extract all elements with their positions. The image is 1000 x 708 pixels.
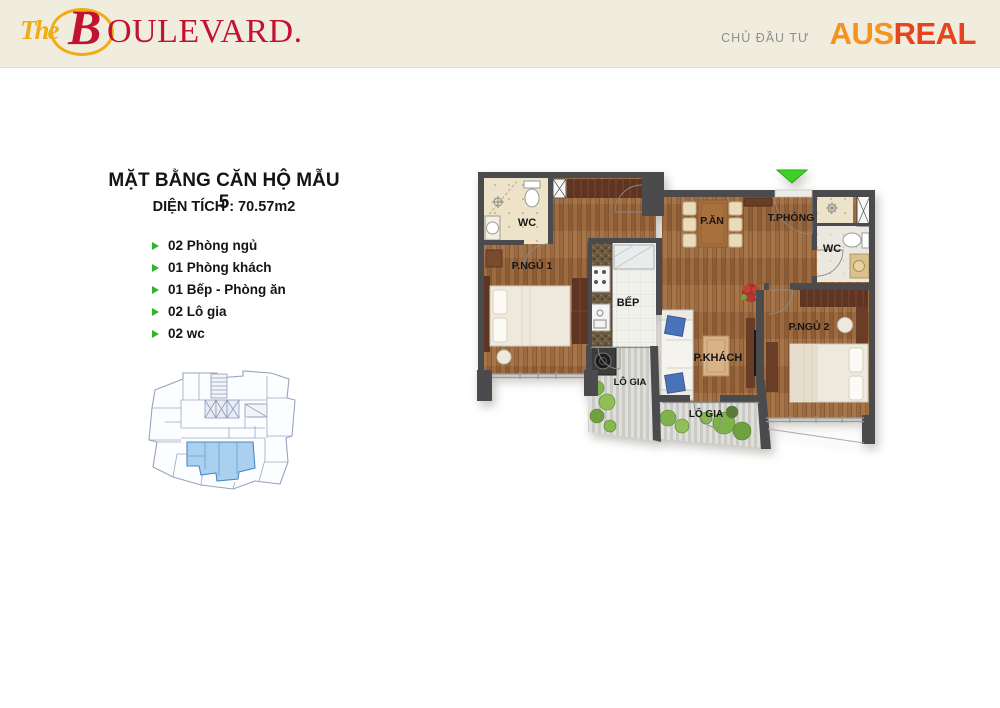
room-label-wc1: WC bbox=[518, 217, 536, 229]
bedroom2-tv-cabinet bbox=[766, 342, 778, 392]
boulevard-logo: The B OULEVARD. bbox=[12, 2, 342, 66]
feature-label: 01 Phòng khách bbox=[168, 260, 272, 275]
tv-screen bbox=[754, 330, 756, 376]
feature-label: 02 Lô gia bbox=[168, 304, 227, 319]
entry-threshold bbox=[775, 190, 812, 197]
bedroom1-nightstand bbox=[486, 250, 502, 267]
apartment-floorplan: WC P.NGỦ 1 BẾP P.ĂN T.PHÒNG WC P.KHÁCH P… bbox=[460, 150, 890, 470]
ausreal-logo: AUSREAL bbox=[830, 16, 976, 52]
bedroom1-headboard bbox=[484, 276, 490, 352]
bullet-triangle-icon bbox=[152, 264, 159, 272]
feature-label: 01 Bếp - Phòng ăn bbox=[168, 282, 286, 297]
entry-arrow-icon bbox=[777, 170, 807, 183]
entry-cabinet bbox=[744, 198, 772, 206]
feature-item: 02 Lô gia bbox=[152, 304, 286, 326]
ausreal-logo-real: REAL bbox=[894, 16, 976, 51]
room-label-bedroom2: P.NGỦ 2 bbox=[789, 320, 830, 333]
page: The B OULEVARD. CHỦ ĐẦU TƯ AUSREAL MẶT B… bbox=[0, 0, 1000, 708]
logo-the: The bbox=[20, 15, 58, 46]
kitchen-sink bbox=[590, 304, 610, 331]
sofa bbox=[661, 310, 693, 400]
header: The B OULEVARD. CHỦ ĐẦU TƯ AUSREAL bbox=[0, 0, 1000, 68]
stove bbox=[590, 266, 610, 292]
sofa-pillow bbox=[665, 316, 686, 337]
page-subtitle: DIỆN TÍCH : 70.57m2 bbox=[103, 199, 345, 215]
building-keyplan bbox=[141, 366, 305, 506]
feature-label: 02 wc bbox=[168, 326, 205, 341]
room-label-loggia-large: LÔ GIA bbox=[689, 407, 723, 420]
bedroom1-wardrobe bbox=[572, 278, 588, 344]
bedroom2-bed bbox=[790, 344, 868, 402]
room-label-loggia-small: LÔ GIA bbox=[614, 376, 647, 388]
ausreal-logo-aus: AUS bbox=[830, 16, 894, 51]
room-label-kitchen: BẾP bbox=[617, 296, 640, 309]
developer-block: CHỦ ĐẦU TƯ AUSREAL bbox=[721, 0, 976, 68]
feature-item: 02 wc bbox=[152, 326, 286, 348]
developer-label: CHỦ ĐẦU TƯ bbox=[721, 31, 810, 45]
feature-item: 01 Bếp - Phòng ăn bbox=[152, 282, 286, 304]
bedroom2-dresser bbox=[856, 307, 868, 345]
room-label-dining: P.ĂN bbox=[700, 214, 724, 227]
bedroom2-stool bbox=[838, 318, 853, 333]
bedroom1-bed bbox=[490, 286, 570, 346]
bedroom2-wardrobe bbox=[800, 290, 868, 307]
room-label-wc2: WC bbox=[823, 243, 841, 255]
bullet-triangle-icon bbox=[152, 308, 159, 316]
bullet-triangle-icon bbox=[152, 330, 159, 338]
bullet-triangle-icon bbox=[152, 242, 159, 250]
logo-b: B bbox=[68, 0, 101, 56]
room-label-entry: T.PHÒNG bbox=[768, 211, 815, 224]
feature-list: 02 Phòng ngủ 01 Phòng khách 01 Bếp - Phò… bbox=[152, 238, 286, 348]
logo-boulevard-text: OULEVARD. bbox=[107, 13, 303, 51]
bedroom1-stool bbox=[497, 350, 511, 364]
feature-item: 02 Phòng ngủ bbox=[152, 238, 286, 260]
bullet-triangle-icon bbox=[152, 286, 159, 294]
room-label-bedroom1: P.NGỦ 1 bbox=[512, 259, 553, 272]
tv-console-living bbox=[746, 318, 755, 388]
sofa-pillow bbox=[665, 373, 686, 394]
feature-item: 01 Phòng khách bbox=[152, 260, 286, 282]
hall-closet bbox=[567, 179, 642, 198]
feature-label: 02 Phòng ngủ bbox=[168, 238, 257, 253]
room-label-living: P.KHÁCH bbox=[694, 351, 743, 364]
